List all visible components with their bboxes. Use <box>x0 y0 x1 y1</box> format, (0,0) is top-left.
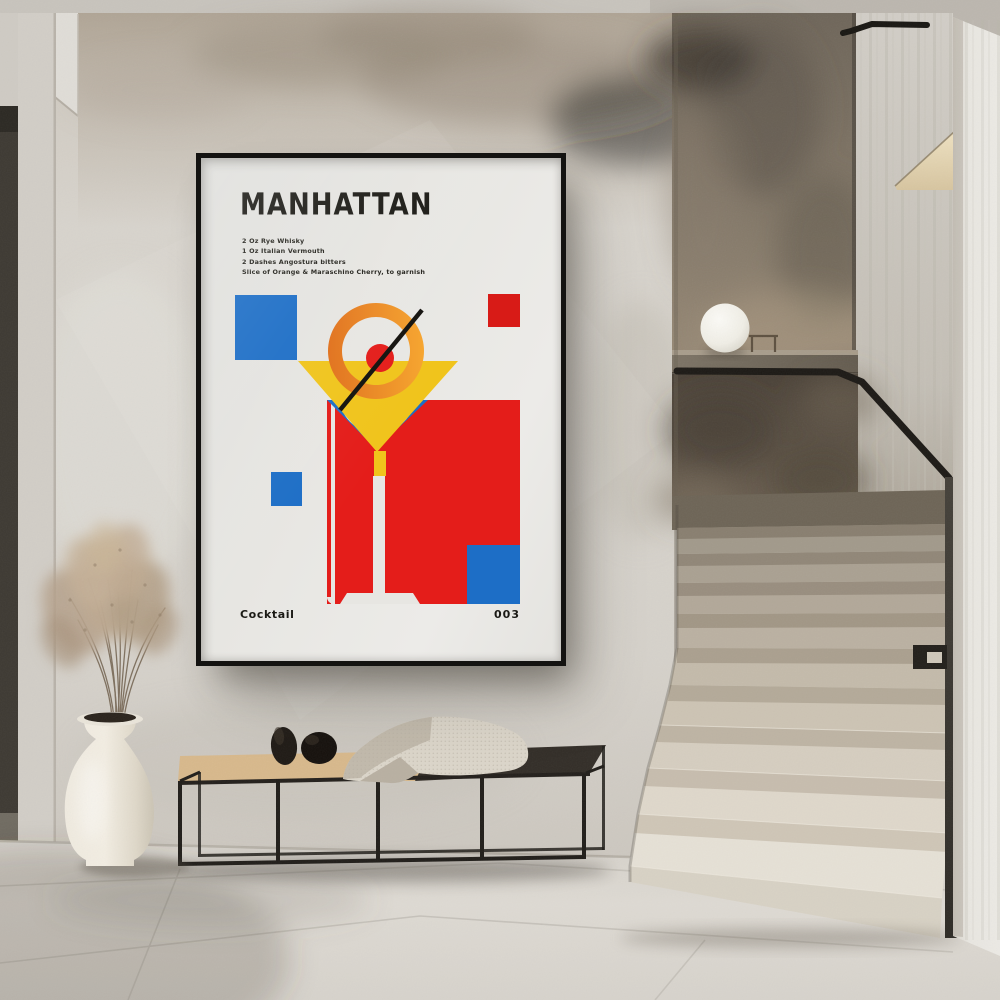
poster-footer-number: 003 <box>494 608 520 621</box>
stem-white <box>373 476 385 593</box>
poster-title: MANHATTAN <box>240 188 433 223</box>
hallway-interior-photo: MANHATTAN 2 Oz Rye Whisky 1 Oz Italian V… <box>0 0 1000 1000</box>
ingredient-line: 2 Dashes Angostura bitters <box>242 257 425 267</box>
ingredient-line: 1 Oz Italian Vermouth <box>242 246 425 256</box>
base-cutout <box>340 593 420 604</box>
poster-footer-label: Cocktail <box>240 608 295 621</box>
stem-yellow <box>374 451 386 476</box>
blue-square-small <box>271 472 302 506</box>
poster-ingredients: 2 Oz Rye Whisky 1 Oz Italian Vermouth 2 … <box>242 236 425 277</box>
ingredient-line: 2 Oz Rye Whisky <box>242 236 425 246</box>
white-stripe <box>331 400 335 604</box>
ingredient-line: Slice of Orange & Maraschino Cherry, to … <box>242 267 425 277</box>
red-square-small <box>488 294 520 327</box>
blue-square-large <box>235 295 297 360</box>
poster-frame: MANHATTAN 2 Oz Rye Whisky 1 Oz Italian V… <box>196 153 566 666</box>
poster-artwork <box>201 158 561 661</box>
blue-corner-square <box>467 545 520 604</box>
